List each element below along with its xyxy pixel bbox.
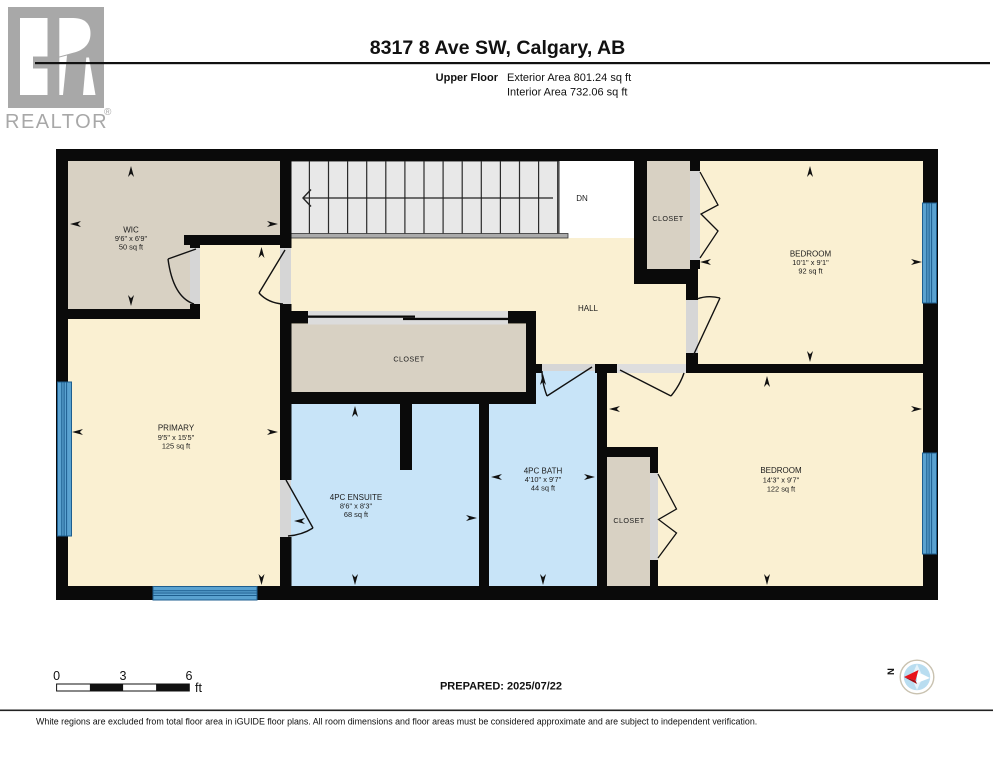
svg-text:Interior Area 732.06 sq ft: Interior Area 732.06 sq ft xyxy=(507,87,627,99)
svg-text:6: 6 xyxy=(186,669,193,683)
svg-text:®: ® xyxy=(104,107,112,118)
svg-text:92 sq ft: 92 sq ft xyxy=(798,266,822,275)
svg-text:CLOSET: CLOSET xyxy=(613,516,644,525)
svg-text:REALTOR: REALTOR xyxy=(5,111,108,133)
svg-text:3: 3 xyxy=(120,669,127,683)
svg-text:N: N xyxy=(886,668,897,675)
svg-text:Upper Floor: Upper Floor xyxy=(436,72,499,84)
svg-text:68 sq ft: 68 sq ft xyxy=(344,510,368,519)
svg-text:125 sq ft: 125 sq ft xyxy=(162,442,190,451)
svg-text:BEDROOM: BEDROOM xyxy=(760,466,802,475)
svg-text:122 sq ft: 122 sq ft xyxy=(767,485,795,494)
svg-text:ft: ft xyxy=(195,681,202,695)
svg-text:PRIMARY: PRIMARY xyxy=(158,424,195,433)
svg-text:CLOSET: CLOSET xyxy=(652,214,683,223)
svg-text:CLOSET: CLOSET xyxy=(393,355,424,364)
svg-text:0: 0 xyxy=(53,669,60,683)
svg-text:DN: DN xyxy=(576,194,588,203)
svg-text:White regions are excluded fro: White regions are excluded from total fl… xyxy=(36,717,757,727)
svg-text:50 sq ft: 50 sq ft xyxy=(119,243,143,252)
svg-text:44 sq ft: 44 sq ft xyxy=(531,483,555,492)
svg-text:Exterior Area 801.24 sq ft: Exterior Area 801.24 sq ft xyxy=(507,72,631,84)
svg-text:8317 8 Ave SW, Calgary, AB: 8317 8 Ave SW, Calgary, AB xyxy=(370,37,626,59)
svg-text:HALL: HALL xyxy=(578,304,599,313)
svg-text:14'3" x 9'7": 14'3" x 9'7" xyxy=(763,476,800,485)
svg-text:PREPARED: 2025/07/22: PREPARED: 2025/07/22 xyxy=(440,681,562,693)
